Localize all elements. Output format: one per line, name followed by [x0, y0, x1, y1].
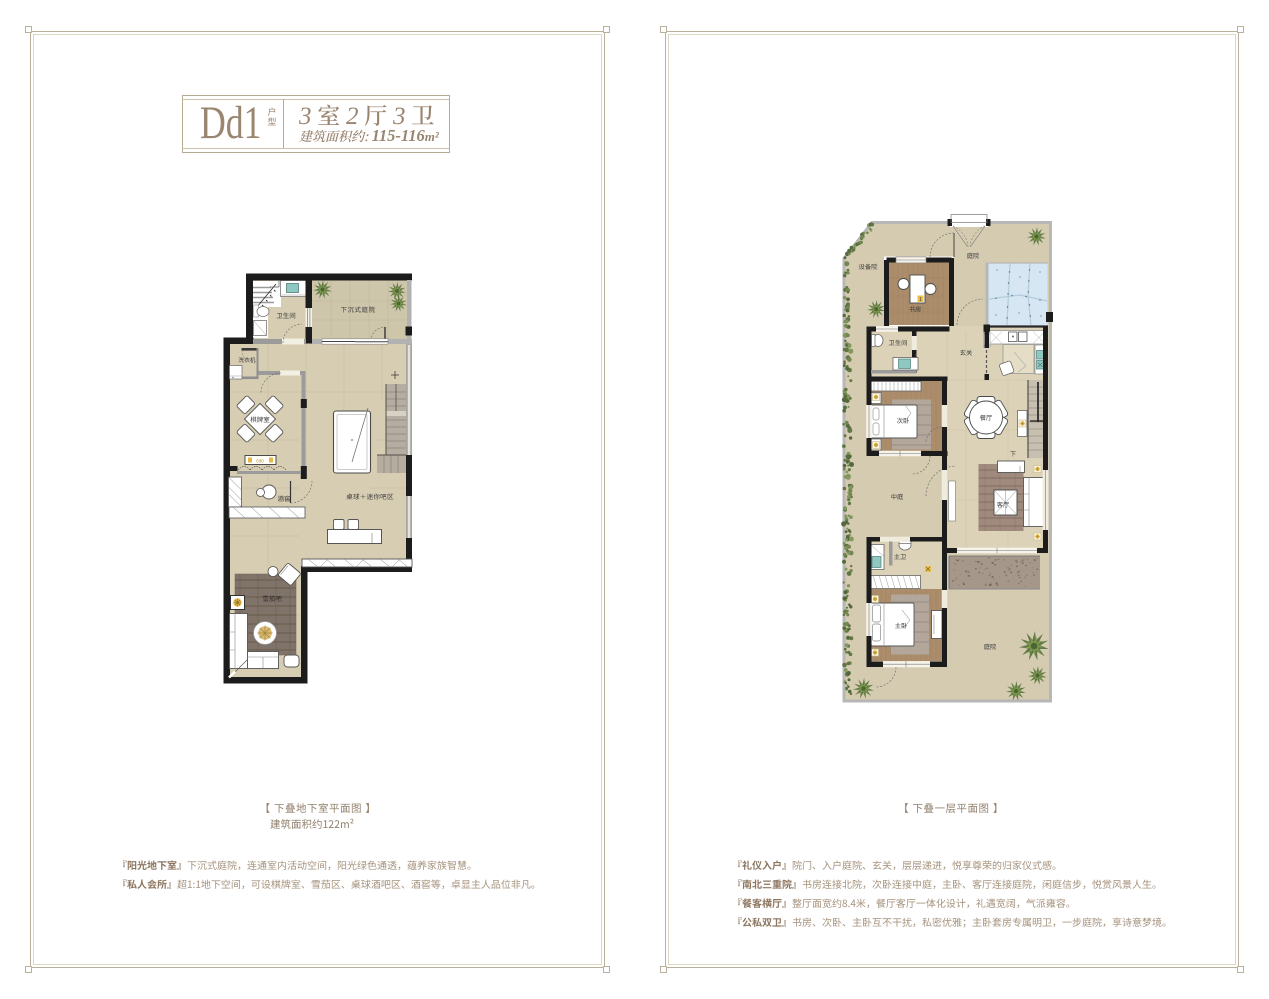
svg-text:次卧: 次卧 [897, 416, 910, 425]
svg-text:棋牌室: 棋牌室 [250, 414, 270, 424]
svg-text:庭院: 庭院 [984, 642, 997, 651]
svg-text:主卧: 主卧 [895, 621, 908, 630]
svg-text:设备院: 设备院 [859, 262, 879, 271]
svg-text:餐厅: 餐厅 [980, 413, 993, 422]
svg-text:卫生间: 卫生间 [276, 310, 296, 320]
svg-text:庭院: 庭院 [967, 251, 980, 260]
svg-text:雪茄吧: 雪茄吧 [262, 593, 282, 603]
svg-text:下沉式庭院: 下沉式庭院 [341, 304, 376, 314]
svg-text:玄关: 玄关 [960, 348, 973, 357]
svg-text:下: 下 [1010, 449, 1016, 458]
svg-text:酒窖: 酒窖 [278, 493, 292, 503]
svg-text:690: 690 [256, 459, 264, 465]
svg-text:中庭: 中庭 [891, 492, 904, 501]
svg-text:客厅: 客厅 [997, 500, 1010, 509]
svg-text:1: 1 [919, 295, 922, 303]
svg-text:桌球＋迷你吧区: 桌球＋迷你吧区 [346, 491, 394, 501]
svg-text:卫生间: 卫生间 [889, 338, 908, 347]
svg-text:书房: 书房 [909, 305, 922, 314]
svg-text:主卫: 主卫 [894, 552, 907, 561]
svg-text:洗衣机: 洗衣机 [238, 355, 256, 364]
